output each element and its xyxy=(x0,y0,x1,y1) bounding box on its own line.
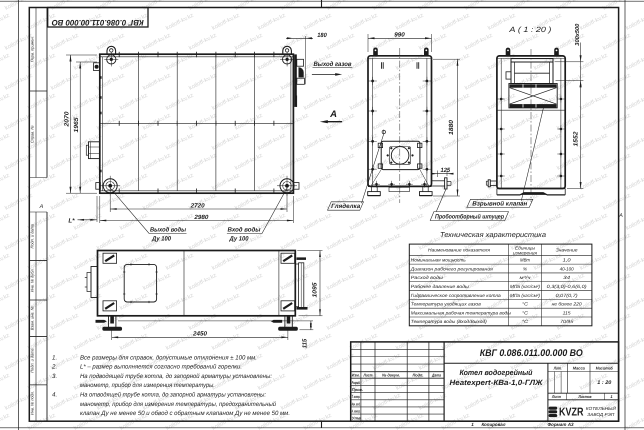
svg-text:kotloff-kv.kz: kotloff-kv.kz xyxy=(257,292,287,312)
svg-text:kotloff-kv.kz: kotloff-kv.kz xyxy=(73,172,103,192)
svg-text:kotloff-kv.kz: kotloff-kv.kz xyxy=(579,132,609,152)
svg-text:kotloff-kv.kz: kotloff-kv.kz xyxy=(234,272,264,292)
svg-text:kotloff-kv.kz: kotloff-kv.kz xyxy=(0,212,11,232)
svg-text:kotloff-kv.kz: kotloff-kv.kz xyxy=(372,72,402,92)
svg-text:kotloff-kv.kz: kotloff-kv.kz xyxy=(372,112,402,132)
svg-text:4.: 4. xyxy=(52,392,57,399)
svg-text:kotloff-kv.kz: kotloff-kv.kz xyxy=(326,72,356,92)
svg-text:Котел водогрейный: Котел водогрейный xyxy=(460,368,533,377)
svg-text:kotloff-kv.kz: kotloff-kv.kz xyxy=(395,172,425,192)
svg-text:Копировал: Копировал xyxy=(482,422,506,427)
svg-text:kotloff-kv.kz: kotloff-kv.kz xyxy=(234,112,264,132)
svg-text:kotloff-kv.kz: kotloff-kv.kz xyxy=(73,332,103,352)
svg-text:ЗАВОД РЭП: ЗАВОД РЭП xyxy=(587,412,615,417)
svg-text:kotloff-kv.kz: kotloff-kv.kz xyxy=(96,0,126,12)
svg-text:kotloff-kv.kz: kotloff-kv.kz xyxy=(395,12,425,32)
svg-text:180: 180 xyxy=(317,32,327,39)
svg-text:kotloff-kv.kz: kotloff-kv.kz xyxy=(349,292,379,312)
svg-text:Выход газов: Выход газов xyxy=(314,61,352,68)
svg-text:А ( 1 : 20 ): А ( 1 : 20 ) xyxy=(508,25,552,34)
svg-text:Изм.: Изм. xyxy=(352,373,360,378)
svg-text:kotloff-kv.kz: kotloff-kv.kz xyxy=(372,0,402,12)
svg-text:1552: 1552 xyxy=(572,131,579,147)
svg-text:40-100: 40-100 xyxy=(560,266,574,271)
svg-text:1: 1 xyxy=(471,422,474,427)
svg-text:Т. контр.: Т. контр. xyxy=(352,394,361,399)
svg-text:Масштаб: Масштаб xyxy=(596,365,613,370)
svg-text:Ду 100: Ду 100 xyxy=(229,236,249,243)
svg-text:kotloff-kv.kz: kotloff-kv.kz xyxy=(165,332,195,352)
svg-text:kotloff-kv.kz: kotloff-kv.kz xyxy=(96,232,126,252)
svg-text:kotloff-kv.kz: kotloff-kv.kz xyxy=(165,172,195,192)
svg-text:1095: 1095 xyxy=(311,282,318,298)
svg-text:kotloff-kv.kz: kotloff-kv.kz xyxy=(142,32,172,52)
svg-text:kotloff-kv.kz: kotloff-kv.kz xyxy=(211,92,241,112)
svg-text:манометр, прибор для измерения: манометр, прибор для измерения температу… xyxy=(80,401,277,408)
svg-text:1880: 1880 xyxy=(448,119,455,135)
svg-text:kotloff-kv.kz: kotloff-kv.kz xyxy=(556,72,586,92)
svg-text:kotloff-kv.kz: kotloff-kv.kz xyxy=(165,292,195,312)
svg-text:Справ. №: Справ. № xyxy=(29,125,34,143)
svg-text:kotloff-kv.kz: kotloff-kv.kz xyxy=(303,212,333,232)
svg-text:kotloff-kv.kz: kotloff-kv.kz xyxy=(395,52,425,72)
svg-text:125: 125 xyxy=(441,167,451,174)
svg-text:kotloff-kv.kz: kotloff-kv.kz xyxy=(142,112,172,132)
svg-text:Пров.: Пров. xyxy=(352,387,363,392)
svg-text:kotloff-kv.kz: kotloff-kv.kz xyxy=(349,212,379,232)
svg-text:kotloff-kv.kz: kotloff-kv.kz xyxy=(188,72,218,92)
svg-text:kotloff-kv.kz: kotloff-kv.kz xyxy=(464,32,494,52)
svg-text:kotloff-kv.kz: kotloff-kv.kz xyxy=(0,292,11,312)
svg-text:Температура уходящих газов: Температура уходящих газов xyxy=(411,302,482,307)
svg-text:Heatexpert-КВа-1,0-ГЛЖ: Heatexpert-КВа-1,0-ГЛЖ xyxy=(450,378,544,387)
svg-text:kotloff-kv.kz: kotloff-kv.kz xyxy=(257,12,287,32)
svg-text:kotloff-kv.kz: kotloff-kv.kz xyxy=(303,12,333,32)
svg-text:На отводящей трубе котла, до з: На отводящей трубе котла, до запорной ар… xyxy=(80,392,266,399)
svg-text:kotloff-kv.kz: kotloff-kv.kz xyxy=(441,12,471,32)
svg-text:kotloff-kv.kz: kotloff-kv.kz xyxy=(326,272,356,292)
svg-text:измерения: измерения xyxy=(513,250,538,255)
svg-text:kotloff-kv.kz: kotloff-kv.kz xyxy=(487,132,517,152)
svg-text:kotloff-kv.kz: kotloff-kv.kz xyxy=(625,412,644,430)
svg-text:kotloff-kv.kz: kotloff-kv.kz xyxy=(0,12,11,32)
svg-text:kotloff-kv.kz: kotloff-kv.kz xyxy=(27,172,57,192)
svg-text:kotloff-kv.kz: kotloff-kv.kz xyxy=(257,92,287,112)
svg-text:kotloff-kv.kz: kotloff-kv.kz xyxy=(579,252,609,272)
svg-text:kotloff-kv.kz: kotloff-kv.kz xyxy=(625,12,644,32)
svg-text:kotloff-kv.kz: kotloff-kv.kz xyxy=(602,272,632,292)
svg-text:Техническая характеристика: Техническая характеристика xyxy=(440,230,546,239)
svg-text:kotloff-kv.kz: kotloff-kv.kz xyxy=(165,252,195,272)
svg-text:kotloff-kv.kz: kotloff-kv.kz xyxy=(73,212,103,232)
svg-text:kotloff-kv.kz: kotloff-kv.kz xyxy=(556,0,586,12)
svg-text:kotloff-kv.kz: kotloff-kv.kz xyxy=(372,232,402,252)
svg-text:kotloff-kv.kz: kotloff-kv.kz xyxy=(326,32,356,52)
svg-text:kotloff-kv.kz: kotloff-kv.kz xyxy=(73,92,103,112)
svg-text:L* – размер выполняется соглас: L* – размер выполняется согласно требова… xyxy=(80,364,242,371)
svg-text:kotloff-kv.kz: kotloff-kv.kz xyxy=(441,92,471,112)
svg-text:kotloff-kv.kz: kotloff-kv.kz xyxy=(50,312,80,332)
svg-text:Гидравлическое сопротивление к: Гидравлическое сопротивление котла xyxy=(411,293,501,298)
svg-text:kotloff-kv.kz: kotloff-kv.kz xyxy=(257,132,287,152)
svg-text:Утв.: Утв. xyxy=(352,416,362,421)
svg-text:kotloff-kv.kz: kotloff-kv.kz xyxy=(602,0,632,12)
svg-text:°С: °С xyxy=(522,302,529,307)
svg-text:kotloff-kv.kz: kotloff-kv.kz xyxy=(372,272,402,292)
svg-text:Подп. и дата: Подп. и дата xyxy=(29,223,34,248)
svg-text:kotloff-kv.kz: kotloff-kv.kz xyxy=(510,112,540,132)
svg-text:kotloff-kv.kz: kotloff-kv.kz xyxy=(625,252,644,272)
svg-text:kotloff-kv.kz: kotloff-kv.kz xyxy=(395,92,425,112)
svg-text:Перв. примен.: Перв. примен. xyxy=(29,36,34,62)
svg-text:kotloff-kv.kz: kotloff-kv.kz xyxy=(0,92,11,112)
svg-text:kotloff-kv.kz: kotloff-kv.kz xyxy=(326,152,356,172)
svg-text:kotloff-kv.kz: kotloff-kv.kz xyxy=(119,252,149,272)
svg-text:kotloff-kv.kz: kotloff-kv.kz xyxy=(0,52,11,72)
svg-text:kotloff-kv.kz: kotloff-kv.kz xyxy=(119,92,149,112)
svg-text:3.: 3. xyxy=(52,373,57,380)
svg-text:kotloff-kv.kz: kotloff-kv.kz xyxy=(372,312,402,332)
svg-text:м³/ч: м³/ч xyxy=(520,275,532,280)
svg-text:kotloff-kv.kz: kotloff-kv.kz xyxy=(464,392,494,412)
svg-text:115: 115 xyxy=(301,338,308,348)
svg-text:kotloff-kv.kz: kotloff-kv.kz xyxy=(533,92,563,112)
svg-text:L*: L* xyxy=(68,217,75,224)
svg-text:kotloff-kv.kz: kotloff-kv.kz xyxy=(211,132,241,152)
svg-text:Вход воды: Вход воды xyxy=(228,226,262,233)
svg-text:Лит.: Лит. xyxy=(553,365,562,370)
svg-text:Гляделка: Гляделка xyxy=(331,203,361,210)
svg-text:kotloff-kv.kz: kotloff-kv.kz xyxy=(579,292,609,312)
svg-text:Подп. и дата: Подп. и дата xyxy=(29,348,34,373)
svg-text:kotloff-kv.kz: kotloff-kv.kz xyxy=(625,92,644,112)
svg-text:kotloff-kv.kz: kotloff-kv.kz xyxy=(96,272,126,292)
svg-text:Номинальная мощность: Номинальная мощность xyxy=(411,258,467,263)
svg-text:kotloff-kv.kz: kotloff-kv.kz xyxy=(418,0,448,12)
svg-text:Лист: Лист xyxy=(363,373,373,378)
svg-text:kotloff-kv.kz: kotloff-kv.kz xyxy=(50,232,80,252)
svg-text:kotloff-kv.kz: kotloff-kv.kz xyxy=(625,332,644,352)
svg-text:kotloff-kv.kz: kotloff-kv.kz xyxy=(418,72,448,92)
svg-text:Наименование показателя: Наименование показателя xyxy=(428,247,491,252)
svg-text:kotloff-kv.kz: kotloff-kv.kz xyxy=(280,0,310,12)
svg-text:kotloff-kv.kz: kotloff-kv.kz xyxy=(119,212,149,232)
svg-text:kotloff-kv.kz: kotloff-kv.kz xyxy=(372,192,402,212)
svg-text:Разраб.: Разраб. xyxy=(352,380,361,385)
svg-text:kotloff-kv.kz: kotloff-kv.kz xyxy=(188,112,218,132)
svg-text:°С: °С xyxy=(522,319,529,324)
svg-text:kotloff-kv.kz: kotloff-kv.kz xyxy=(257,172,287,192)
svg-text:№ докум.: № докум. xyxy=(382,373,400,378)
svg-text:Выход воды: Выход воды xyxy=(150,226,187,233)
svg-text:kotloff-kv.kz: kotloff-kv.kz xyxy=(579,172,609,192)
svg-text:Все размеры для справок, допус: Все размеры для справок, допустимые откл… xyxy=(80,354,257,361)
svg-text:kotloff-kv.kz: kotloff-kv.kz xyxy=(50,32,80,52)
svg-text:Лист: Лист xyxy=(551,394,561,399)
svg-text:kotloff-kv.kz: kotloff-kv.kz xyxy=(142,0,172,12)
svg-text:kotloff-kv.kz: kotloff-kv.kz xyxy=(349,172,379,192)
svg-text:Ду 100: Ду 100 xyxy=(151,236,171,243)
svg-text:kotloff-kv.kz: kotloff-kv.kz xyxy=(211,332,241,352)
svg-text:kotloff-kv.kz: kotloff-kv.kz xyxy=(579,92,609,112)
svg-text:kotloff-kv.kz: kotloff-kv.kz xyxy=(0,332,11,352)
svg-text:Расход воды: Расход воды xyxy=(411,275,444,280)
svg-text:kotloff-kv.kz: kotloff-kv.kz xyxy=(579,12,609,32)
svg-text:115: 115 xyxy=(563,310,571,315)
svg-text:манометр, прибор для измерения: манометр, прибор для измерения температу… xyxy=(80,382,215,389)
svg-text:kotloff-kv.kz: kotloff-kv.kz xyxy=(280,112,310,132)
svg-text:kotloff-kv.kz: kotloff-kv.kz xyxy=(602,112,632,132)
svg-text:kotloff-kv.kz: kotloff-kv.kz xyxy=(602,72,632,92)
svg-text:34: 34 xyxy=(563,275,571,280)
svg-text:КВГ 0.086.011.00.000 ВО: КВГ 0.086.011.00.000 ВО xyxy=(51,18,144,27)
svg-text:kotloff-kv.kz: kotloff-kv.kz xyxy=(418,32,448,52)
svg-text:kotloff-kv.kz: kotloff-kv.kz xyxy=(188,0,218,12)
svg-text:kotloff-kv.kz: kotloff-kv.kz xyxy=(188,32,218,52)
svg-text:kotloff-kv.kz: kotloff-kv.kz xyxy=(188,232,218,252)
svg-text:kotloff-kv.kz: kotloff-kv.kz xyxy=(165,92,195,112)
svg-text:2720: 2720 xyxy=(190,202,206,209)
svg-text:kotloff-kv.kz: kotloff-kv.kz xyxy=(418,392,448,412)
svg-text:не более 220: не более 220 xyxy=(552,302,582,307)
svg-text:А: А xyxy=(329,109,337,120)
svg-text:kotloff-kv.kz: kotloff-kv.kz xyxy=(50,72,80,92)
svg-text:Нач. отд.: Нач. отд. xyxy=(352,401,361,406)
svg-text:А: А xyxy=(618,213,623,219)
svg-text:kotloff-kv.kz: kotloff-kv.kz xyxy=(418,112,448,132)
svg-text:kotloff-kv.kz: kotloff-kv.kz xyxy=(349,252,379,272)
svg-text:990: 990 xyxy=(394,32,405,39)
svg-text:kotloff-kv.kz: kotloff-kv.kz xyxy=(510,392,540,412)
svg-text:kotloff-kv.kz: kotloff-kv.kz xyxy=(0,412,11,430)
svg-text:kotloff-kv.kz: kotloff-kv.kz xyxy=(280,152,310,172)
svg-text:kotloff-kv.kz: kotloff-kv.kz xyxy=(142,152,172,172)
svg-text:Инв. № подл.: Инв. № подл. xyxy=(29,391,34,415)
svg-text:kotloff-kv.kz: kotloff-kv.kz xyxy=(487,92,517,112)
svg-text:kotloff-kv.kz: kotloff-kv.kz xyxy=(211,12,241,32)
svg-text:Дата: Дата xyxy=(431,373,441,378)
svg-text:kotloff-kv.kz: kotloff-kv.kz xyxy=(303,252,333,272)
svg-text:kotloff-kv.kz: kotloff-kv.kz xyxy=(326,232,356,252)
svg-text:kotloff-kv.kz: kotloff-kv.kz xyxy=(27,92,57,112)
svg-text:Температура воды (Вход/Выход): Температура воды (Вход/Выход) xyxy=(411,319,487,324)
svg-text:МПа (кгс/см²): МПа (кгс/см²) xyxy=(510,293,540,298)
svg-text:kotloff-kv.kz: kotloff-kv.kz xyxy=(395,212,425,232)
svg-text:КОТЕЛЬНЫЙ: КОТЕЛЬНЫЙ xyxy=(586,406,617,411)
svg-text:kotloff-kv.kz: kotloff-kv.kz xyxy=(602,232,632,252)
svg-text:kotloff-kv.kz: kotloff-kv.kz xyxy=(349,92,379,112)
svg-text:2070: 2070 xyxy=(63,111,70,128)
svg-text:Взрывной клапан: Взрывной клапан xyxy=(472,200,527,207)
svg-text:1: 1 xyxy=(610,394,613,399)
svg-text:kotloff-kv.kz: kotloff-kv.kz xyxy=(556,32,586,52)
svg-text:kotloff-kv.kz: kotloff-kv.kz xyxy=(142,312,172,332)
svg-text:kotloff-kv.kz: kotloff-kv.kz xyxy=(464,152,494,172)
svg-text:0,3(3,0)-0,6(6,0): 0,3(3,0)-0,6(6,0) xyxy=(547,284,588,289)
svg-text:kotloff-kv.kz: kotloff-kv.kz xyxy=(602,152,632,172)
svg-text:kotloff-kv.kz: kotloff-kv.kz xyxy=(441,132,471,152)
svg-text:kotloff-kv.kz: kotloff-kv.kz xyxy=(234,152,264,172)
svg-text:kotloff-kv.kz: kotloff-kv.kz xyxy=(349,12,379,32)
svg-text:Листов: Листов xyxy=(578,394,592,399)
svg-text:kotloff-kv.kz: kotloff-kv.kz xyxy=(441,52,471,72)
svg-text:kotloff-kv.kz: kotloff-kv.kz xyxy=(510,0,540,12)
svg-text:kotloff-kv.kz: kotloff-kv.kz xyxy=(234,312,264,332)
svg-text:kotloff-kv.kz: kotloff-kv.kz xyxy=(625,372,644,392)
svg-text:kotloff-kv.kz: kotloff-kv.kz xyxy=(533,252,563,272)
svg-text:Значение: Значение xyxy=(556,247,578,252)
svg-text:Формат А3: Формат А3 xyxy=(548,422,574,427)
svg-text:МПа (кгс/см²): МПа (кгс/см²) xyxy=(510,284,540,289)
svg-text:kotloff-kv.kz: kotloff-kv.kz xyxy=(211,292,241,312)
svg-text:kotloff-kv.kz: kotloff-kv.kz xyxy=(303,132,333,152)
svg-text:Диапазон рабочего регулировани: Диапазон рабочего регулирования xyxy=(410,266,494,271)
svg-text:kotloff-kv.kz: kotloff-kv.kz xyxy=(602,192,632,212)
svg-text:1,0: 1,0 xyxy=(563,258,572,263)
svg-text:kotloff-kv.kz: kotloff-kv.kz xyxy=(50,0,80,12)
svg-text:kotloff-kv.kz: kotloff-kv.kz xyxy=(50,192,80,212)
svg-text:2450: 2450 xyxy=(192,331,208,338)
svg-text:kotloff-kv.kz: kotloff-kv.kz xyxy=(0,132,11,152)
svg-text:KVZR: KVZR xyxy=(559,406,584,418)
svg-text:kotloff-kv.kz: kotloff-kv.kz xyxy=(303,372,333,392)
svg-text:На подводящей трубе котла, до: На подводящей трубе котла, до запорной а… xyxy=(80,373,272,380)
svg-text:kotloff-kv.kz: kotloff-kv.kz xyxy=(349,132,379,152)
svg-text:kotloff-kv.kz: kotloff-kv.kz xyxy=(280,232,310,252)
svg-text:°С: °С xyxy=(522,310,529,315)
svg-text:kotloff-kv.kz: kotloff-kv.kz xyxy=(257,212,287,232)
svg-text:kotloff-kv.kz: kotloff-kv.kz xyxy=(257,332,287,352)
svg-text:kotloff-kv.kz: kotloff-kv.kz xyxy=(625,172,644,192)
svg-text:Масса: Масса xyxy=(573,365,586,370)
svg-text:kotloff-kv.kz: kotloff-kv.kz xyxy=(211,172,241,192)
svg-text:kotloff-kv.kz: kotloff-kv.kz xyxy=(50,152,80,172)
svg-text:kotloff-kv.kz: kotloff-kv.kz xyxy=(464,72,494,92)
svg-text:2980: 2980 xyxy=(193,214,209,221)
svg-text:kotloff-kv.kz: kotloff-kv.kz xyxy=(280,352,310,372)
svg-text:kotloff-kv.kz: kotloff-kv.kz xyxy=(579,212,609,232)
svg-text:1965: 1965 xyxy=(73,117,80,133)
svg-text:kotloff-kv.kz: kotloff-kv.kz xyxy=(602,32,632,52)
svg-text:kotloff-kv.kz: kotloff-kv.kz xyxy=(50,272,80,292)
svg-text:kotloff-kv.kz: kotloff-kv.kz xyxy=(326,312,356,332)
svg-text:kotloff-kv.kz: kotloff-kv.kz xyxy=(372,392,402,412)
svg-text:kotloff-kv.kz: kotloff-kv.kz xyxy=(0,252,11,272)
svg-text:kotloff-kv.kz: kotloff-kv.kz xyxy=(234,72,264,92)
svg-text:1.: 1. xyxy=(52,354,57,361)
svg-text:kotloff-kv.kz: kotloff-kv.kz xyxy=(510,32,540,52)
svg-text:kotloff-kv.kz: kotloff-kv.kz xyxy=(303,172,333,192)
svg-text:Н. контр.: Н. контр. xyxy=(352,409,361,414)
svg-text:kotloff-kv.kz: kotloff-kv.kz xyxy=(625,52,644,72)
svg-text:kotloff-kv.kz: kotloff-kv.kz xyxy=(326,0,356,12)
svg-text:Подп.: Подп. xyxy=(413,373,424,378)
svg-text:kotloff-kv.kz: kotloff-kv.kz xyxy=(602,312,632,332)
svg-text:kotloff-kv.kz: kotloff-kv.kz xyxy=(510,152,540,172)
svg-text:kotloff-kv.kz: kotloff-kv.kz xyxy=(280,392,310,412)
svg-text:1 : 20: 1 : 20 xyxy=(597,380,611,386)
svg-text:КВГ 0.086.011.00.000 ВО: КВГ 0.086.011.00.000 ВО xyxy=(480,348,583,359)
svg-text:Инв. № дубл.: Инв. № дубл. xyxy=(29,268,34,292)
svg-text:kotloff-kv.kz: kotloff-kv.kz xyxy=(188,312,218,332)
svg-text:kotloff-kv.kz: kotloff-kv.kz xyxy=(119,332,149,352)
svg-text:kotloff-kv.kz: kotloff-kv.kz xyxy=(142,72,172,92)
svg-text:kotloff-kv.kz: kotloff-kv.kz xyxy=(372,352,402,372)
svg-text:kotloff-kv.kz: kotloff-kv.kz xyxy=(625,292,644,312)
svg-text:0,07(0,7): 0,07(0,7) xyxy=(556,293,579,298)
svg-text:kotloff-kv.kz: kotloff-kv.kz xyxy=(464,0,494,12)
svg-text:Пробоотборный штуцер: Пробоотборный штуцер xyxy=(435,213,504,220)
svg-text:kotloff-kv.kz: kotloff-kv.kz xyxy=(234,0,264,12)
svg-text:kotloff-kv.kz: kotloff-kv.kz xyxy=(625,132,644,152)
svg-text:300х500: 300х500 xyxy=(574,23,581,46)
svg-text:А: А xyxy=(39,204,44,210)
svg-text:kotloff-kv.kz: kotloff-kv.kz xyxy=(211,252,241,272)
svg-text:kotloff-kv.kz: kotloff-kv.kz xyxy=(119,132,149,152)
svg-text:70/95: 70/95 xyxy=(560,319,573,324)
svg-text:kotloff-kv.kz: kotloff-kv.kz xyxy=(464,112,494,132)
svg-text:kotloff-kv.kz: kotloff-kv.kz xyxy=(119,172,149,192)
svg-text:kotloff-kv.kz: kotloff-kv.kz xyxy=(257,252,287,272)
svg-text:%: % xyxy=(523,266,527,271)
svg-text:2.: 2. xyxy=(51,364,57,371)
svg-text:kotloff-kv.kz: kotloff-kv.kz xyxy=(533,212,563,232)
svg-text:kotloff-kv.kz: kotloff-kv.kz xyxy=(165,12,195,32)
svg-text:kotloff-kv.kz: kotloff-kv.kz xyxy=(188,272,218,292)
svg-text:kotloff-kv.kz: kotloff-kv.kz xyxy=(418,352,448,372)
svg-text:клапан Ду не менее 50 и обвод: клапан Ду не менее 50 и обвод с обратным… xyxy=(80,410,290,417)
svg-text:Рабочее давление воды: Рабочее давление воды xyxy=(411,284,470,289)
svg-text:Максимальная рабочая температу: Максимальная рабочая температура воды xyxy=(411,310,512,315)
svg-text:kotloff-kv.kz: kotloff-kv.kz xyxy=(234,32,264,52)
svg-text:kotloff-kv.kz: kotloff-kv.kz xyxy=(165,132,195,152)
svg-text:kotloff-kv.kz: kotloff-kv.kz xyxy=(303,92,333,112)
svg-text:kotloff-kv.kz: kotloff-kv.kz xyxy=(625,212,644,232)
svg-text:kotloff-kv.kz: kotloff-kv.kz xyxy=(0,372,11,392)
svg-text:kotloff-kv.kz: kotloff-kv.kz xyxy=(0,172,11,192)
svg-text:kotloff-kv.kz: kotloff-kv.kz xyxy=(188,152,218,172)
svg-text:Взам. инв. №: Взам. инв. № xyxy=(29,305,34,330)
svg-text:МВт: МВт xyxy=(520,258,530,263)
